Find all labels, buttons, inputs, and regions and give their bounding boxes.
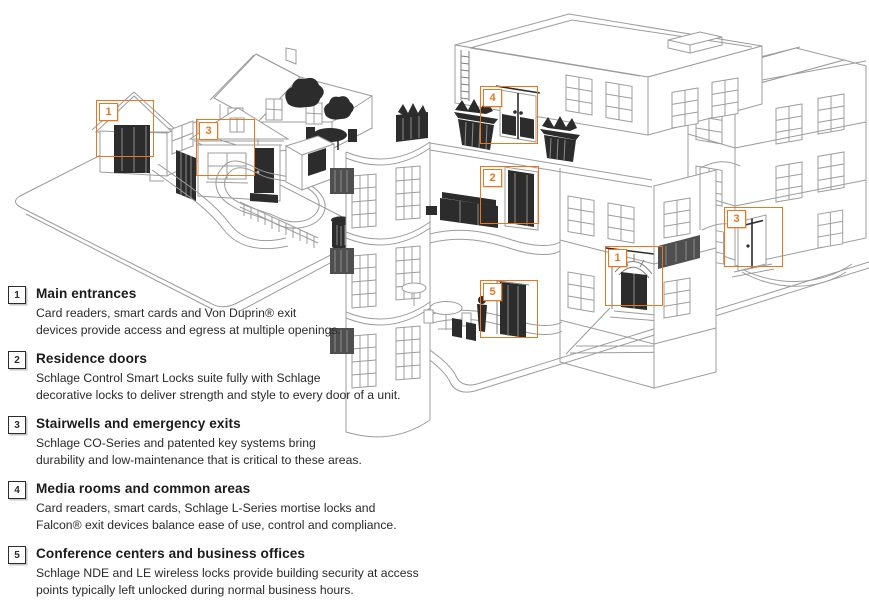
legend-number-badge: 3 bbox=[8, 416, 26, 434]
legend-item-title: Stairwells and emergency exits bbox=[36, 416, 428, 432]
legend-item-description: Schlage CO-Series and patented key syste… bbox=[36, 435, 428, 452]
legend-item-media-rooms: 4 Media rooms and common areas Card read… bbox=[8, 481, 428, 534]
legend-item-title: Media rooms and common areas bbox=[36, 481, 428, 497]
legend-number-badge: 2 bbox=[8, 351, 26, 369]
callout-marker-number: 5 bbox=[483, 283, 502, 301]
callout-marker-office-ground-floor: 5 bbox=[480, 280, 538, 338]
legend-item-description: Falcon® exit devices balance ease of use… bbox=[36, 517, 428, 534]
callout-marker-residence-unit-door: 2 bbox=[480, 166, 539, 224]
legend-item-conference-centers: 5 Conference centers and business office… bbox=[8, 546, 428, 599]
callout-marker-main-building-entrance: 1 bbox=[605, 246, 663, 306]
legend-item-stairwells: 3 Stairwells and emergency exits Schlage… bbox=[8, 416, 428, 469]
legend-item-description: Schlage NDE and LE wireless locks provid… bbox=[36, 565, 428, 582]
legend-item-residence-doors: 2 Residence doors Schlage Control Smart … bbox=[8, 351, 428, 404]
legend-item-title: Conference centers and business offices bbox=[36, 546, 428, 562]
callout-marker-house-side-exit: 3 bbox=[196, 119, 255, 176]
legend-item-title: Main entrances bbox=[36, 286, 428, 302]
legend-item-description: decorative locks to deliver strength and… bbox=[36, 387, 428, 404]
callout-marker-number: 4 bbox=[483, 89, 502, 107]
legend-number-badge: 4 bbox=[8, 481, 26, 499]
legend-item-description: devices provide access and egress at mul… bbox=[36, 322, 428, 339]
legend-item-title: Residence doors bbox=[36, 351, 428, 367]
legend-item-description: points typically left unlocked during no… bbox=[36, 582, 428, 599]
callout-marker-number: 1 bbox=[608, 249, 627, 267]
legend-item-main-entrances: 1 Main entrances Card readers, smart car… bbox=[8, 286, 428, 339]
callout-marker-stairwell-side-door: 3 bbox=[724, 207, 783, 267]
legend: 1 Main entrances Card readers, smart car… bbox=[8, 286, 428, 611]
legend-number-badge: 1 bbox=[8, 286, 26, 304]
callout-marker-number: 3 bbox=[727, 210, 746, 228]
legend-number-badge: 5 bbox=[8, 546, 26, 564]
callout-marker-number: 3 bbox=[199, 122, 218, 140]
callout-marker-media-room-roof-terrace: 4 bbox=[480, 86, 538, 144]
callout-marker-number: 2 bbox=[483, 169, 502, 187]
legend-item-description: durability and low-maintenance that is c… bbox=[36, 452, 428, 469]
callout-marker-house-front-entrance: 1 bbox=[96, 100, 154, 157]
legend-item-description: Card readers, smart cards, Schlage L-Ser… bbox=[36, 500, 428, 517]
legend-item-description: Schlage Control Smart Locks suite fully … bbox=[36, 370, 428, 387]
callout-marker-number: 1 bbox=[99, 103, 118, 121]
legend-item-description: Card readers, smart cards and Von Duprin… bbox=[36, 305, 428, 322]
infographic: 1342513 1 Main entrances Card readers, s… bbox=[0, 0, 869, 589]
